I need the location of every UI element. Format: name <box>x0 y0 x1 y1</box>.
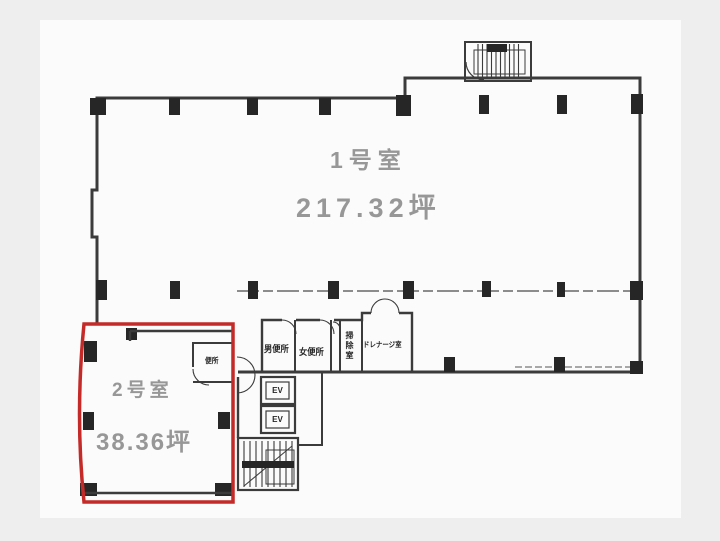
elevator-1-label: EV <box>266 382 289 399</box>
room2-highlight-outline <box>80 324 234 502</box>
cleaning-room-label: 掃除室 <box>345 331 353 361</box>
corridor-door-swing-icon <box>237 357 255 393</box>
mens-toilet-label: 男便所 <box>264 345 289 354</box>
room1-area-label: 217.32坪 <box>296 195 441 222</box>
roof-stairwell <box>465 42 531 81</box>
drainage-room-label: ドレナージ室 <box>363 341 402 349</box>
room2-area-label: 38.36坪 <box>96 431 192 455</box>
room1-name-label: 1号室 <box>330 149 407 172</box>
floor-plan-drawing <box>0 0 720 541</box>
floor-plan-page: 1号室 217.32坪 2号室 38.36坪 男便所 女便所 掃除室 ドレナージ… <box>0 0 720 541</box>
womens-toilet-label: 女便所 <box>299 348 324 357</box>
room2-name-label: 2号室 <box>112 381 173 400</box>
door-swing-icon <box>282 320 296 334</box>
door-swing-icon <box>333 322 340 329</box>
building-outline <box>92 78 640 372</box>
toilet-door-swings <box>282 299 399 334</box>
elevator-2-label: EV <box>266 411 289 428</box>
small-toilet-label: 便所 <box>205 357 219 365</box>
double-door-swing-icon <box>371 299 399 313</box>
